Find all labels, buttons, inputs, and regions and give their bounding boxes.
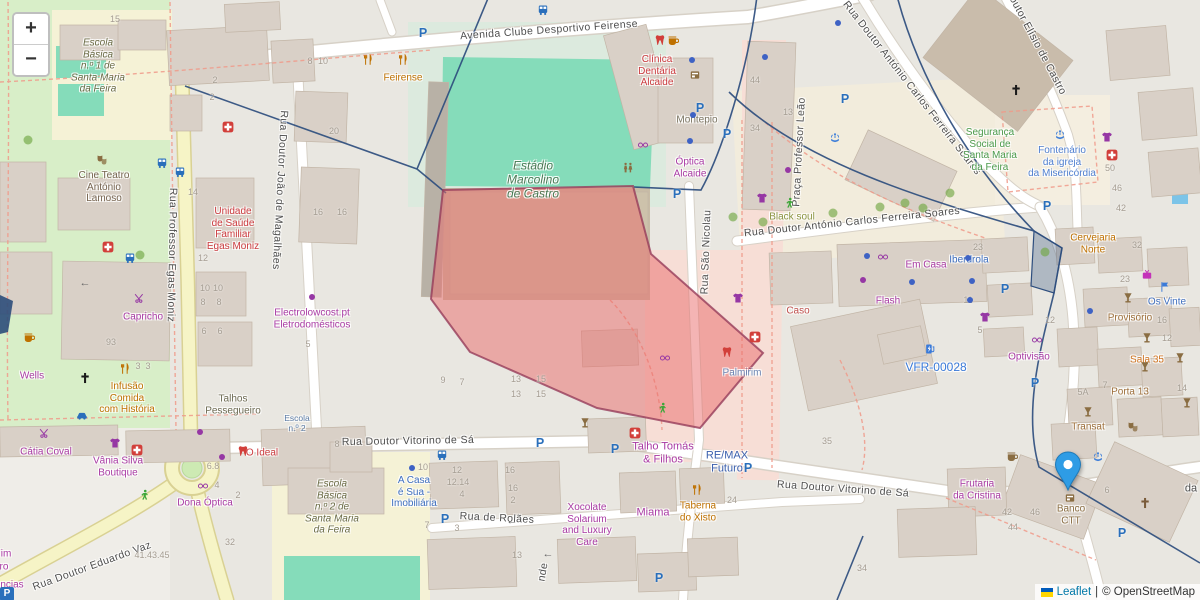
tree-icon xyxy=(876,203,885,212)
house-number: 2 xyxy=(212,75,217,85)
church-icon xyxy=(79,372,91,384)
cutlery-icon xyxy=(119,363,131,375)
house-number: 15 xyxy=(110,14,120,24)
goblet-icon xyxy=(1141,332,1153,344)
tree-icon xyxy=(136,251,145,260)
glasses-icon xyxy=(197,480,209,492)
parking-icon: P xyxy=(419,26,427,40)
attribution-separator: | xyxy=(1095,586,1098,598)
bus-icon xyxy=(436,449,448,461)
parking-icon: P xyxy=(696,101,704,115)
poi-label: Black soul xyxy=(769,211,815,223)
goblet-icon xyxy=(1122,292,1134,304)
house-number: 5 xyxy=(977,325,982,335)
poi-label: RE/MAXFuturo xyxy=(706,449,748,474)
medcross-icon xyxy=(131,444,143,456)
street-label: Doutor Elísio de Castro xyxy=(1003,0,1069,97)
scissors-icon xyxy=(39,427,51,439)
poi-label: Flash xyxy=(876,295,900,307)
house-number: 3 xyxy=(145,361,150,371)
poi-label: Wells xyxy=(20,370,44,382)
house-number: 50 xyxy=(1105,163,1115,173)
poi-label: SegurançaSocial deSanta Mariada Feira xyxy=(963,127,1017,173)
house-number: 24 xyxy=(727,495,737,505)
house-number: 8 xyxy=(334,439,339,449)
cutlery-icon xyxy=(397,54,409,66)
medcross-icon xyxy=(102,241,114,253)
house-number: 2 xyxy=(235,490,240,500)
marker-pin-icon xyxy=(1054,451,1082,491)
zoom-out-button[interactable]: − xyxy=(14,45,48,75)
poi-label: VFR-00028 xyxy=(905,361,966,375)
parking-icon: P xyxy=(673,187,681,201)
poi-label: Em Casa xyxy=(905,259,946,271)
poi-label: BancoCTT xyxy=(1057,504,1085,527)
poi-label: Miama xyxy=(636,507,669,520)
tooth-icon xyxy=(721,346,733,358)
house-number: 10 xyxy=(200,283,210,293)
poi-label: InfusãoComidacom História xyxy=(99,381,155,416)
poi-label: Electrolowcost.ptEletrodomésticos xyxy=(274,308,351,331)
house-number: 46 xyxy=(1030,507,1040,517)
house-number: 44 xyxy=(750,75,760,85)
house-number: 42 xyxy=(1002,507,1012,517)
tooth-icon xyxy=(237,445,249,457)
fountain-icon xyxy=(1054,129,1066,141)
medcross-icon xyxy=(749,331,761,343)
poi-dot-icon xyxy=(689,57,695,63)
parking-square-icon: P xyxy=(0,587,14,600)
street-label: Rua Doutor Eduardo Vaz xyxy=(31,539,153,593)
poi-label: Dona Óptica xyxy=(177,497,233,509)
cup-icon xyxy=(667,35,679,47)
poi-label: ClínicaDentáriaAlcaide xyxy=(638,54,676,89)
street-label: Avenida Clube Desportivo Feirense xyxy=(460,18,639,42)
poi-label: Porta 13 xyxy=(1111,386,1149,398)
ukraine-flag-icon xyxy=(1041,588,1053,597)
house-number: 35 xyxy=(822,436,832,446)
poi-label: EstádioMarcolinode Castro xyxy=(507,159,559,200)
bus-icon xyxy=(174,166,186,178)
house-number: 2 xyxy=(209,92,214,102)
house-number: 8 xyxy=(200,297,205,307)
house-number: 23 xyxy=(1120,274,1130,284)
person-icon xyxy=(784,197,796,209)
poi-label: Talho Tomás& Filhos xyxy=(632,440,694,465)
cup-icon xyxy=(23,332,35,344)
poi-label: Fontenárioda igrejada Misericórdia xyxy=(1028,145,1096,180)
house-number: 44 xyxy=(1008,522,1018,532)
house-number: 2 xyxy=(510,495,515,505)
house-number: 4 xyxy=(459,489,464,499)
house-number: 3 xyxy=(454,523,459,533)
person-icon xyxy=(139,489,151,501)
house-number: 13 xyxy=(511,374,521,384)
tree-icon xyxy=(24,136,33,145)
zoom-control: + − xyxy=(12,12,50,77)
house-number: 5 xyxy=(305,339,310,349)
street-label: Rua Doutor Vitorino de Sá xyxy=(342,434,475,448)
shirt-icon xyxy=(1101,131,1113,143)
tree-icon xyxy=(946,189,955,198)
house-number: 15 xyxy=(536,374,546,384)
house-number: 16 xyxy=(508,483,518,493)
street-label: Rua de Rolães xyxy=(459,510,534,526)
poi-label: Frutariada Cristina xyxy=(953,479,1001,502)
car-icon xyxy=(76,410,88,422)
shirt-icon xyxy=(732,292,744,304)
bank-icon xyxy=(689,69,701,81)
poi-label: im xyxy=(1,548,12,560)
medcross-icon xyxy=(629,427,641,439)
bus-icon xyxy=(156,157,168,169)
poi-label: Capricho xyxy=(123,311,163,323)
parking-icon: P xyxy=(744,461,752,475)
poi-dot-icon xyxy=(197,429,203,435)
parking-icon: P xyxy=(536,436,544,450)
poi-label: Escolan.º 2 xyxy=(284,414,310,434)
poi-label: XocolateSolariumand LuxuryCare xyxy=(562,502,611,548)
house-number: 13 xyxy=(783,107,793,117)
shirt-icon xyxy=(756,192,768,204)
poi-label: Provisório xyxy=(1108,312,1152,324)
house-number: 6.8 xyxy=(207,461,220,471)
tree-icon xyxy=(919,204,928,213)
parking-icon: P xyxy=(1043,199,1051,213)
goblet-icon xyxy=(1174,352,1186,364)
house-number: 7 xyxy=(459,377,464,387)
poi-dot-icon xyxy=(909,279,915,285)
house-number: 42 xyxy=(1116,203,1126,213)
house-number: 16 xyxy=(1157,315,1167,325)
poi-dot-icon xyxy=(967,297,973,303)
house-number: 13 xyxy=(511,389,521,399)
house-number: 12.14 xyxy=(447,477,470,487)
house-number: 32 xyxy=(1132,240,1142,250)
poi-dot-icon xyxy=(687,138,693,144)
house-number: 14 xyxy=(1177,383,1187,393)
arrow-icon: ← xyxy=(507,515,518,527)
medcross-icon xyxy=(222,121,234,133)
street-label: Rua Doutor João de Magalhães xyxy=(270,110,290,270)
poi-dot-icon xyxy=(864,253,870,259)
house-number: 14 xyxy=(188,187,198,197)
house-number: 4 xyxy=(214,480,219,490)
poi-dot-icon xyxy=(860,277,866,283)
street-label: nde xyxy=(535,562,550,583)
house-number: 10 xyxy=(318,56,328,66)
cup-icon xyxy=(1006,451,1018,463)
glasses-icon xyxy=(659,352,671,364)
poi-label: Caso xyxy=(786,305,809,317)
map-marker[interactable] xyxy=(1054,451,1082,496)
tv-icon xyxy=(1141,269,1153,281)
house-number: 7 xyxy=(424,520,429,530)
poi-label: EscolaBásican.º 2 deSanta Mariada Feira xyxy=(305,478,359,536)
bus-icon xyxy=(537,4,549,16)
poi-label: Feirense xyxy=(384,72,423,84)
flag-icon xyxy=(1159,281,1171,293)
shirt-icon xyxy=(979,311,991,323)
house-number: 7 xyxy=(1102,380,1107,390)
house-number: 5A xyxy=(1077,387,1088,397)
house-number: 13 xyxy=(512,550,522,560)
zoom-in-button[interactable]: + xyxy=(14,14,48,45)
house-number: 12 xyxy=(1162,333,1172,343)
person-icon xyxy=(657,402,669,414)
goblet-icon xyxy=(1139,361,1151,373)
poi-dot-icon xyxy=(965,255,971,261)
bus-icon xyxy=(124,252,136,264)
house-number: 93 xyxy=(106,337,116,347)
house-number: 8 xyxy=(307,56,312,66)
poi-label: Cine TeatroAntónioLamoso xyxy=(79,170,130,205)
poi-label: Optivisão xyxy=(1008,351,1050,363)
parking-icon: P xyxy=(1031,376,1039,390)
tooth-icon xyxy=(654,34,666,46)
poi-label: A Casaé Sua -Imobiliária xyxy=(391,475,437,510)
poi-label: EscolaBásican.º 1 deSanta Mariada Feira xyxy=(71,37,125,95)
poi-dot-icon xyxy=(309,294,315,300)
house-number: 32 xyxy=(225,537,235,547)
house-number: 6 xyxy=(217,326,222,336)
house-number: 16 xyxy=(313,207,323,217)
poi-label: Palmirim xyxy=(723,367,762,379)
poi-dot-icon xyxy=(835,20,841,26)
poi-dot-icon xyxy=(762,54,768,60)
house-number: 16 xyxy=(337,207,347,217)
house-number: 10 xyxy=(213,283,223,293)
house-number: 12 xyxy=(452,465,462,475)
poi-label: Tabernado Xisto xyxy=(680,501,716,524)
house-number: 34 xyxy=(857,563,867,573)
masks-icon xyxy=(1127,421,1139,433)
wc-icon xyxy=(622,162,634,174)
poi-label: Montepio xyxy=(676,114,717,126)
scissors-icon xyxy=(134,292,146,304)
osm-attribution-link[interactable]: © OpenStreetMap xyxy=(1102,586,1195,598)
house-number: 8 xyxy=(216,297,221,307)
tree-icon xyxy=(1041,248,1050,257)
poi-label: Os Vinte xyxy=(1148,296,1186,308)
masks-icon xyxy=(96,154,108,166)
glasses-icon xyxy=(877,251,889,263)
parking-icon: P xyxy=(1001,282,1009,296)
poi-label: CervejariaNorte xyxy=(1070,233,1116,256)
parking-icon: P xyxy=(611,442,619,456)
glasses-icon xyxy=(637,139,649,151)
poi-dot-icon xyxy=(690,112,696,118)
parking-icon: P xyxy=(841,92,849,106)
church-icon xyxy=(1139,497,1151,509)
poi-label: ÓpticaAlcaide xyxy=(674,157,707,180)
house-number: 23 xyxy=(973,242,983,252)
parking-icon: P xyxy=(723,127,731,141)
street-label: Rua Doutor Vitorino de Sá xyxy=(777,478,910,499)
tree-icon xyxy=(729,213,738,222)
poi-dot-icon xyxy=(785,167,791,173)
poi-label: ro xyxy=(0,561,8,573)
map-canvas[interactable]: Avenida Clube Desportivo FeirenseRua Dou… xyxy=(0,0,1200,600)
shirt-icon xyxy=(109,437,121,449)
charger-icon xyxy=(924,343,936,355)
house-number: 41.43.45 xyxy=(134,550,169,560)
arrow-icon: ← xyxy=(80,277,91,289)
goblet-icon xyxy=(1082,406,1094,418)
parking-icon: P xyxy=(1118,526,1126,540)
leaflet-link[interactable]: Leaflet xyxy=(1057,586,1092,598)
house-number: 12 xyxy=(1045,315,1055,325)
glasses-icon xyxy=(1031,334,1043,346)
attribution-bar: Leaflet | © OpenStreetMap xyxy=(1035,584,1200,600)
poi-label: O Ideal xyxy=(246,447,278,459)
house-number: 3 xyxy=(135,361,140,371)
house-number: 34 xyxy=(750,123,760,133)
tree-icon xyxy=(829,209,838,218)
poi-label: da xyxy=(1185,483,1197,496)
map-labels-layer: Avenida Clube Desportivo FeirenseRua Dou… xyxy=(0,0,1200,600)
tree-icon xyxy=(759,218,768,227)
poi-label: Unidadede SaúdeFamiliarEgas Moniz xyxy=(207,206,259,252)
medcross-icon xyxy=(1106,149,1118,161)
poi-dot-icon xyxy=(969,278,975,284)
street-label: Rua São Nicolau xyxy=(699,209,714,294)
street-label: Rua Professor Egas Moniz xyxy=(165,188,179,323)
poi-label: Vânia SilvaBoutique xyxy=(93,456,143,479)
church-icon xyxy=(1010,84,1022,96)
fountain-icon xyxy=(829,132,841,144)
house-number: 10 xyxy=(418,462,428,472)
fountain-icon xyxy=(1092,451,1104,463)
arrow-icon: ← xyxy=(543,548,554,560)
goblet-icon xyxy=(1181,397,1193,409)
poi-dot-icon xyxy=(409,465,415,471)
poi-label: Cátia Coval xyxy=(20,446,72,458)
house-number: 12 xyxy=(198,253,208,263)
goblet-icon xyxy=(579,417,591,429)
poi-label: TalhosPessegueiro xyxy=(205,394,261,417)
house-number: 16 xyxy=(505,465,515,475)
cutlery-icon xyxy=(362,54,374,66)
house-number: 20 xyxy=(329,126,339,136)
house-number: 6 xyxy=(201,326,206,336)
poi-label: Transat xyxy=(1071,421,1105,433)
cutlery-icon xyxy=(691,484,703,496)
house-number: 46 xyxy=(1112,183,1122,193)
tree-icon xyxy=(901,199,910,208)
parking-icon: P xyxy=(441,512,449,526)
parking-icon: P xyxy=(655,571,663,585)
house-number: 6 xyxy=(1104,485,1109,495)
house-number: 15 xyxy=(536,389,546,399)
poi-dot-icon xyxy=(1087,308,1093,314)
house-number: 9 xyxy=(440,375,445,385)
poi-dot-icon xyxy=(219,454,225,460)
